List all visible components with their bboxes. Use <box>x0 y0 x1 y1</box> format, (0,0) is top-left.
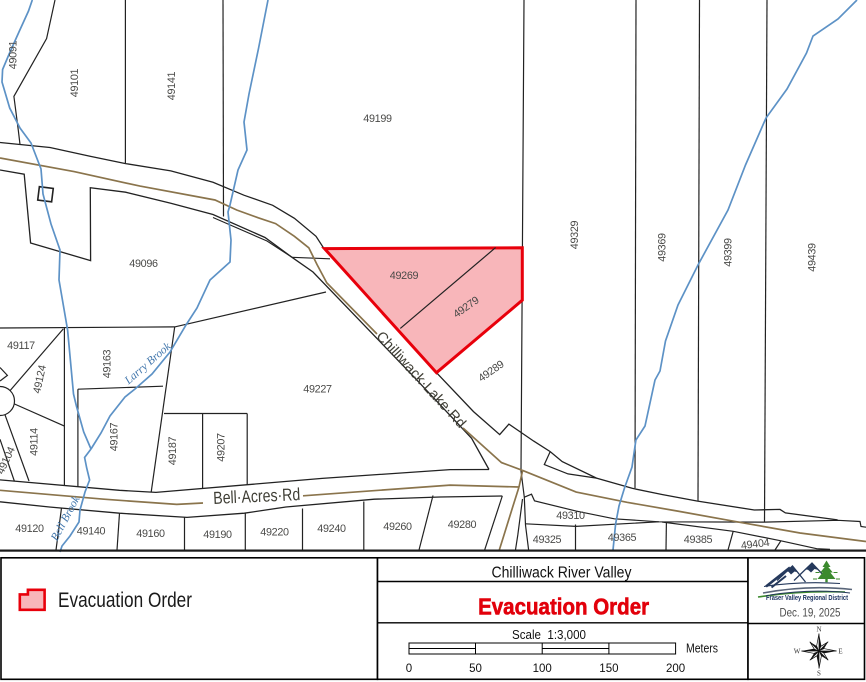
svg-text:49091: 49091 <box>8 40 20 69</box>
svg-text:Chilliwack River Valley: Chilliwack River Valley <box>492 565 632 582</box>
svg-text:49207: 49207 <box>216 433 228 462</box>
svg-text:200: 200 <box>666 663 685 675</box>
svg-text:Scale 1:3,000: Scale 1:3,000 <box>512 627 586 642</box>
svg-text:Meters: Meters <box>686 642 718 656</box>
svg-text:49385: 49385 <box>684 534 713 546</box>
svg-text:100: 100 <box>533 663 552 675</box>
svg-text:N: N <box>816 626 821 634</box>
svg-text:Evacuation Order: Evacuation Order <box>478 594 649 620</box>
svg-text:E: E <box>838 648 842 656</box>
svg-text:49439: 49439 <box>807 243 819 272</box>
svg-text:49140: 49140 <box>77 526 106 538</box>
svg-text:49101: 49101 <box>69 68 81 97</box>
svg-text:S: S <box>817 670 821 678</box>
svg-text:150: 150 <box>599 663 618 675</box>
svg-text:49096: 49096 <box>129 258 158 270</box>
svg-text:49220: 49220 <box>260 527 289 539</box>
svg-text:49369: 49369 <box>657 233 669 262</box>
svg-text:49240: 49240 <box>317 523 346 535</box>
svg-text:49117: 49117 <box>7 340 35 352</box>
svg-text:49310: 49310 <box>556 510 585 522</box>
svg-text:49120: 49120 <box>15 523 44 535</box>
svg-text:W: W <box>794 648 801 656</box>
svg-text:49269: 49269 <box>390 270 419 282</box>
svg-text:49280: 49280 <box>448 519 477 531</box>
svg-text:49141: 49141 <box>166 71 178 100</box>
svg-text:49260: 49260 <box>383 521 412 533</box>
svg-text:49163: 49163 <box>102 349 114 378</box>
svg-text:50: 50 <box>469 663 482 675</box>
svg-text:49114: 49114 <box>29 428 41 456</box>
svg-text:49160: 49160 <box>136 528 165 540</box>
svg-text:49190: 49190 <box>203 529 232 541</box>
svg-text:49365: 49365 <box>608 532 637 544</box>
svg-text:49227: 49227 <box>303 384 332 396</box>
svg-text:49167: 49167 <box>109 422 121 451</box>
svg-text:0: 0 <box>406 663 412 675</box>
svg-text:49199: 49199 <box>363 113 392 125</box>
svg-text:49399: 49399 <box>723 238 735 267</box>
svg-text:Fraser Valley Regional Distric: Fraser Valley Regional District <box>766 595 849 602</box>
svg-text:Evacuation Order: Evacuation Order <box>58 589 192 612</box>
svg-text:49187: 49187 <box>167 436 179 465</box>
svg-text:Bell·Acres·Rd: Bell·Acres·Rd <box>213 484 301 508</box>
svg-text:49325: 49325 <box>533 534 562 546</box>
svg-text:49329: 49329 <box>569 220 581 249</box>
svg-text:Dec. 19, 2025: Dec. 19, 2025 <box>780 605 841 619</box>
